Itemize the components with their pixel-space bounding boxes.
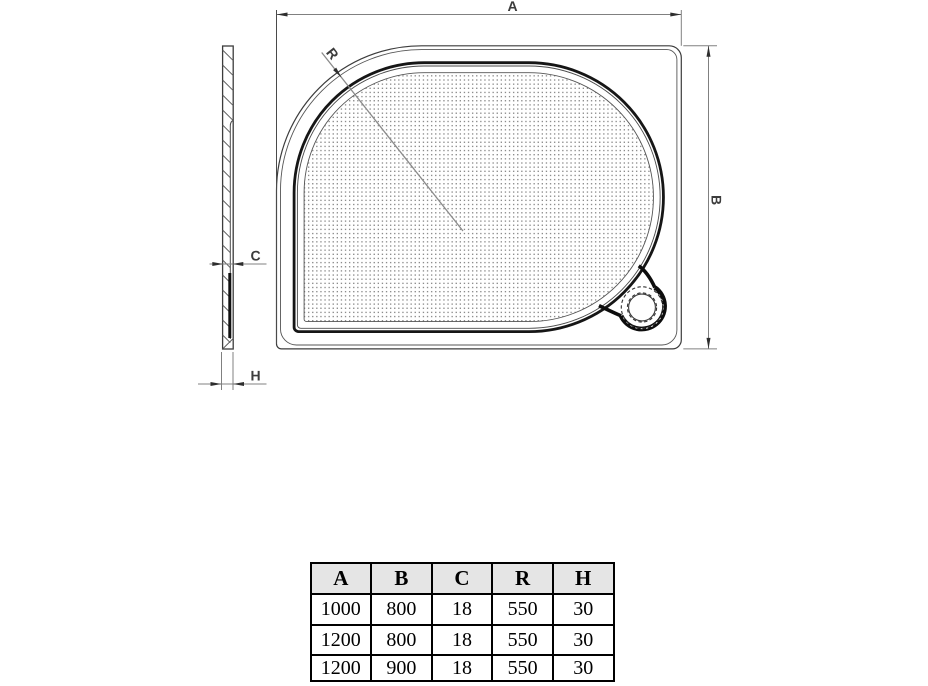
svg-text:B: B	[709, 195, 725, 205]
svg-text:H: H	[250, 368, 260, 384]
svg-text:C: C	[250, 248, 260, 264]
svg-text:A: A	[507, 0, 517, 14]
